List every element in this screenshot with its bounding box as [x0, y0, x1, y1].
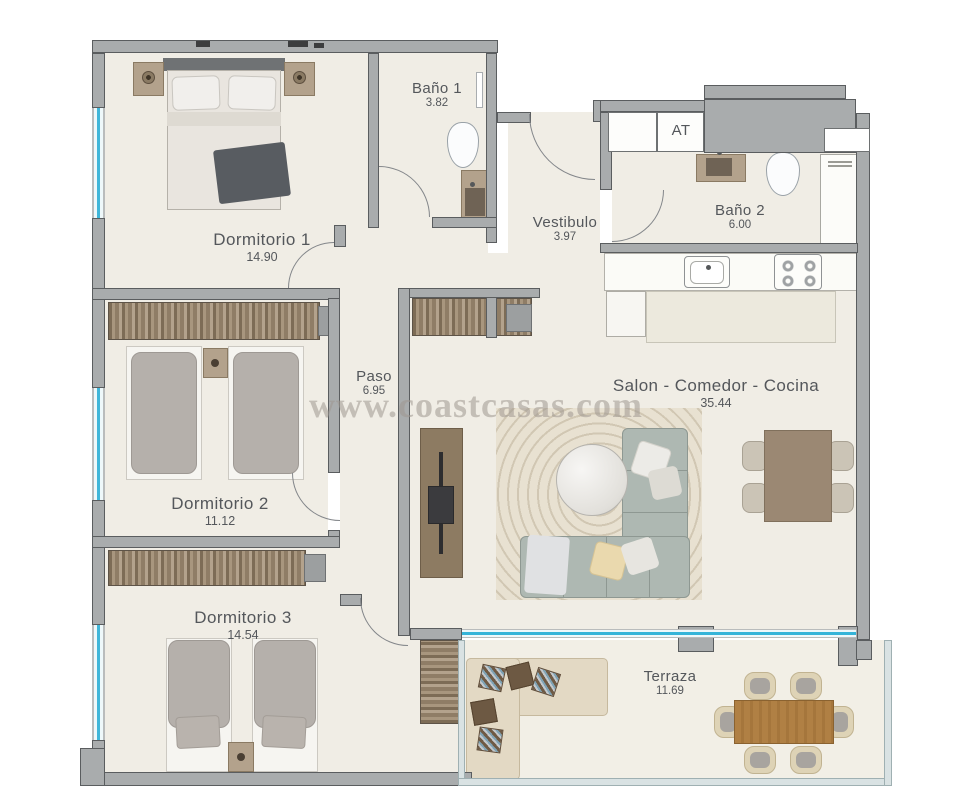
- kitchen-island: [646, 291, 836, 343]
- shower-line: [828, 161, 852, 163]
- towel-radiator: [476, 72, 483, 108]
- room-area: 14.90: [213, 250, 310, 264]
- wall-segment: [600, 100, 716, 112]
- wall-segment: [92, 218, 105, 388]
- shower-line: [828, 165, 852, 167]
- room-name: Baño 1: [412, 80, 462, 97]
- wall-segment: [92, 772, 472, 786]
- bed-pillow: [227, 75, 276, 111]
- room-area: 11.12: [171, 514, 268, 528]
- terrace-cushion: [476, 726, 503, 753]
- terrace-dining-table: [734, 700, 834, 744]
- room-label-bano-1: Baño 1 3.82: [412, 80, 462, 110]
- room-area: 35.44: [613, 396, 819, 410]
- wall-segment: [92, 500, 105, 625]
- terrace-railing: [458, 778, 890, 786]
- wall-segment: [856, 113, 870, 640]
- wall-segment: [856, 640, 872, 660]
- terrace-railing: [458, 640, 465, 780]
- room-label-terraza: Terraza 11.69: [644, 668, 697, 698]
- wall-segment: [92, 536, 340, 548]
- terrace-chair: [790, 672, 822, 700]
- wardrobe: [420, 640, 462, 724]
- bed-pillow: [171, 75, 220, 111]
- bed-sheet-fold: [167, 112, 281, 126]
- dining-table: [764, 430, 832, 522]
- wall-segment: [92, 288, 340, 300]
- room-label-dormitorio-1: Dormitorio 1 14.90: [213, 230, 310, 264]
- closet-divider: [656, 112, 658, 152]
- watermark: www.coastcasas.com: [309, 384, 643, 426]
- wall-segment: [432, 217, 497, 228]
- bed-pillow: [261, 715, 307, 749]
- room-name: Terraza: [644, 668, 697, 685]
- terrace-chair: [790, 746, 822, 774]
- terrace-cushion: [470, 698, 498, 726]
- room-name: AT: [672, 122, 691, 139]
- wall-segment: [92, 53, 105, 108]
- room-name: Dormitorio 1: [213, 230, 310, 250]
- wall-segment: [497, 112, 531, 123]
- wall-segment: [398, 288, 540, 298]
- fridge: [606, 291, 646, 337]
- vanity-basin: [465, 188, 485, 216]
- dimension-tick: [314, 43, 324, 48]
- terrace-railing: [884, 640, 892, 786]
- lamp-icon: [211, 359, 219, 367]
- floor-plan: Dormitorio 1 14.90 Baño 1 3.82 Vestibulo…: [0, 0, 964, 800]
- bed-blanket: [233, 352, 299, 474]
- room-label-vestibulo: Vestibulo 3.97: [533, 214, 597, 244]
- lamp-icon: [293, 71, 306, 84]
- room-name: Vestibulo: [533, 214, 597, 231]
- room-area: 3.97: [533, 231, 597, 244]
- room-area: 11.69: [644, 685, 697, 698]
- room-label-dormitorio-2: Dormitorio 2 11.12: [171, 494, 268, 528]
- wardrobe: [108, 550, 306, 586]
- lamp-icon: [142, 71, 155, 84]
- room-name: Salon - Comedor - Cocina: [613, 376, 819, 396]
- kitchen-sink: [684, 256, 730, 288]
- window-terrace: [462, 629, 856, 638]
- bed-pillow: [175, 715, 221, 749]
- wall-segment: [340, 594, 362, 606]
- wall-segment: [486, 53, 497, 243]
- room-name: Baño 2: [715, 202, 765, 219]
- terrace-cushion: [478, 664, 506, 692]
- tv-console-box: [428, 486, 454, 524]
- sofa-throw: [524, 535, 570, 596]
- wall-segment: [334, 225, 346, 247]
- room-area: 14.54: [194, 628, 291, 642]
- bed-blanket: [168, 640, 230, 728]
- room-label-bano-2: Baño 2 6.00: [715, 202, 765, 232]
- wall-segment: [80, 748, 105, 786]
- wall-segment: [600, 243, 858, 253]
- room-label-salon: Salon - Comedor - Cocina 35.44: [613, 376, 819, 410]
- window: [92, 625, 105, 740]
- coffee-table: [556, 444, 628, 516]
- bed-throw: [213, 142, 291, 204]
- wall-niche: [824, 128, 870, 152]
- wall-segment: [410, 628, 462, 640]
- wardrobe: [108, 302, 320, 340]
- dimension-tick: [288, 41, 308, 47]
- dimension-tick: [196, 41, 210, 47]
- room-label-at: AT: [672, 122, 691, 139]
- vanity-basin: [706, 158, 732, 176]
- wardrobe-end-block: [506, 304, 532, 332]
- shower: [820, 154, 858, 246]
- room-name: Dormitorio 2: [171, 494, 268, 514]
- room-area: 6.00: [715, 219, 765, 232]
- terrace-chair: [744, 746, 776, 774]
- room-area: 3.82: [412, 97, 462, 110]
- window: [92, 108, 105, 218]
- window: [92, 388, 105, 500]
- room-label-dormitorio-3: Dormitorio 3 14.54: [194, 608, 291, 642]
- wall-segment: [704, 85, 846, 99]
- room-name: Dormitorio 3: [194, 608, 291, 628]
- bed-blanket: [131, 352, 197, 474]
- sofa-cushion: [647, 465, 683, 501]
- wardrobe-end-block: [304, 554, 326, 582]
- cooktop: [774, 254, 822, 290]
- room-name: Paso: [356, 368, 392, 385]
- terrace-chair: [744, 672, 776, 700]
- lamp-icon: [237, 753, 245, 761]
- wall-segment: [368, 53, 379, 228]
- faucet-icon: [706, 265, 711, 270]
- wall-segment: [398, 288, 410, 636]
- faucet-icon: [470, 182, 475, 187]
